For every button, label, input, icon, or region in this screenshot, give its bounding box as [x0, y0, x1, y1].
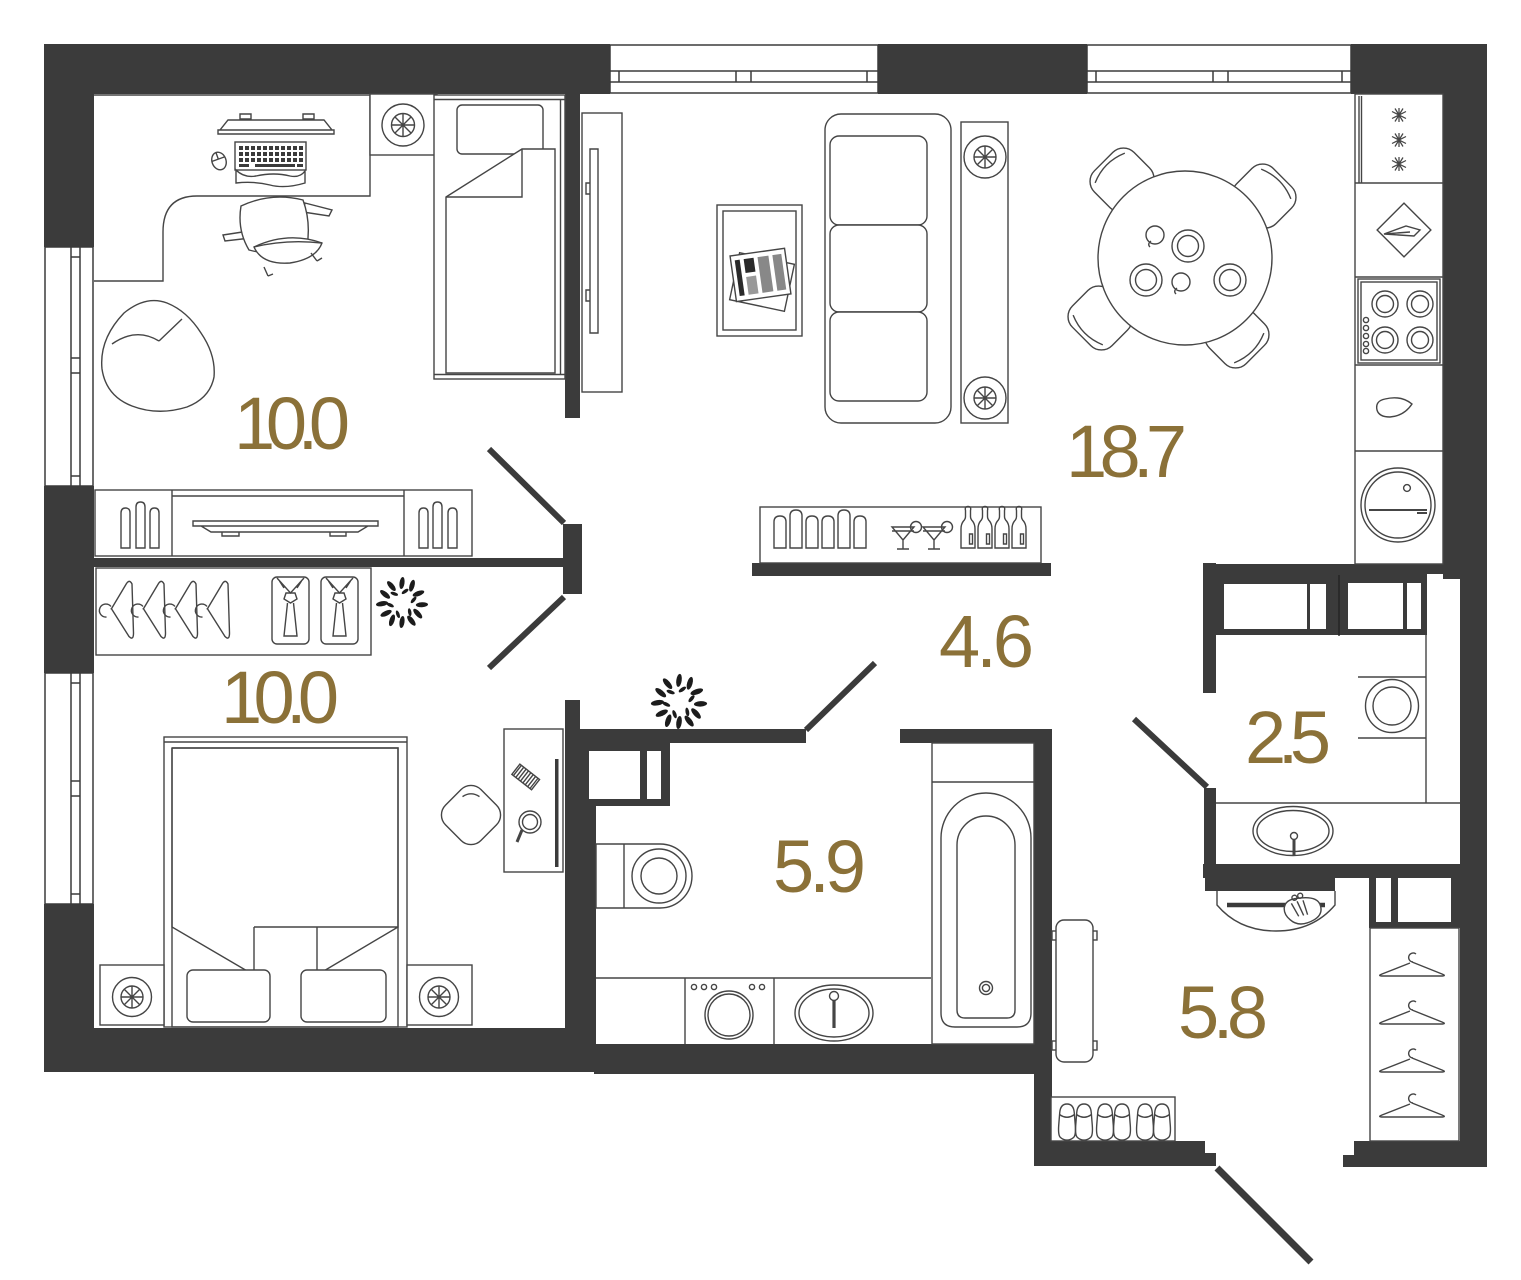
svg-text:18.7: 18.7	[1066, 410, 1186, 493]
svg-text:4.6: 4.6	[939, 600, 1033, 683]
svg-text:2.5: 2.5	[1245, 696, 1330, 779]
svg-text:5.9: 5.9	[773, 825, 865, 908]
svg-text:10.0: 10.0	[221, 656, 338, 739]
svg-text:5.8: 5.8	[1178, 971, 1267, 1054]
svg-text:10.0: 10.0	[234, 382, 349, 465]
